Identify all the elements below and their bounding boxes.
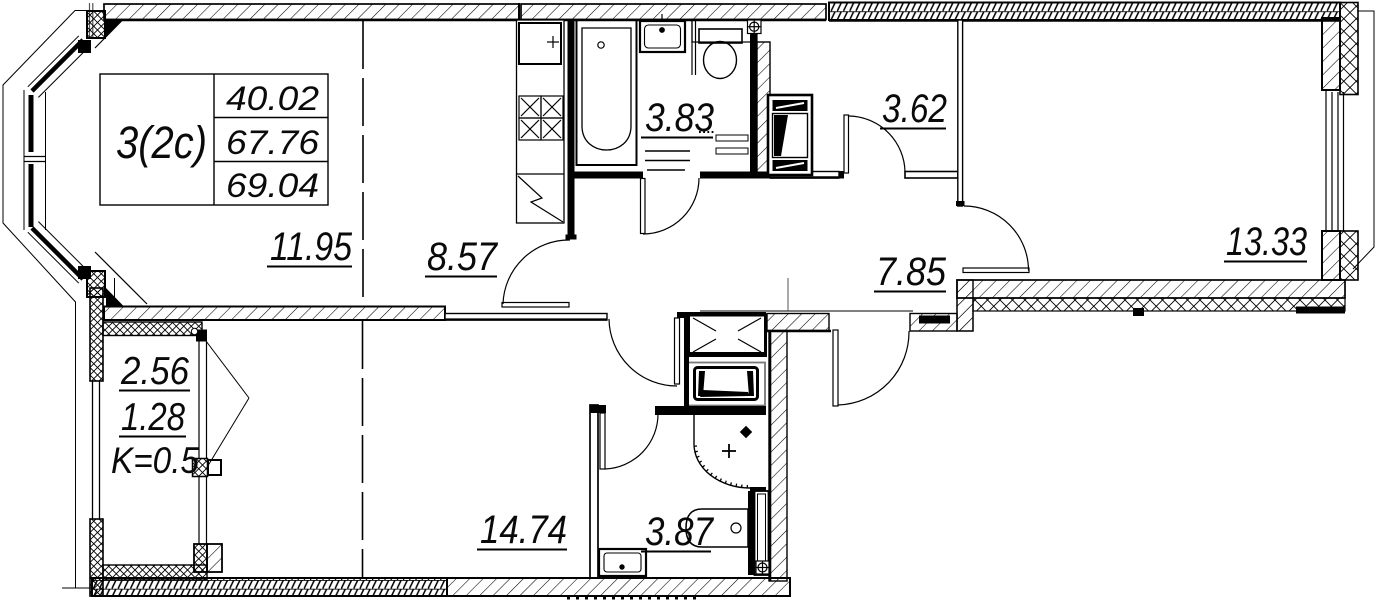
svg-text:3.62: 3.62 — [882, 87, 947, 131]
svg-text:7.85: 7.85 — [876, 250, 947, 294]
svg-text:8.57: 8.57 — [427, 235, 499, 279]
svg-text:67.76: 67.76 — [226, 124, 319, 162]
svg-text:3.83: 3.83 — [645, 96, 714, 140]
svg-text:1.28: 1.28 — [121, 396, 185, 439]
svg-text:14.74: 14.74 — [480, 508, 567, 552]
svg-text:3(2c): 3(2c) — [116, 117, 207, 168]
svg-text:K=0.5: K=0.5 — [111, 440, 199, 481]
svg-text:11.95: 11.95 — [270, 225, 353, 269]
svg-text:40.02: 40.02 — [226, 80, 319, 118]
svg-text:2.56: 2.56 — [120, 350, 189, 393]
svg-text:69.04: 69.04 — [226, 167, 319, 205]
svg-text:13.33: 13.33 — [1226, 220, 1307, 264]
